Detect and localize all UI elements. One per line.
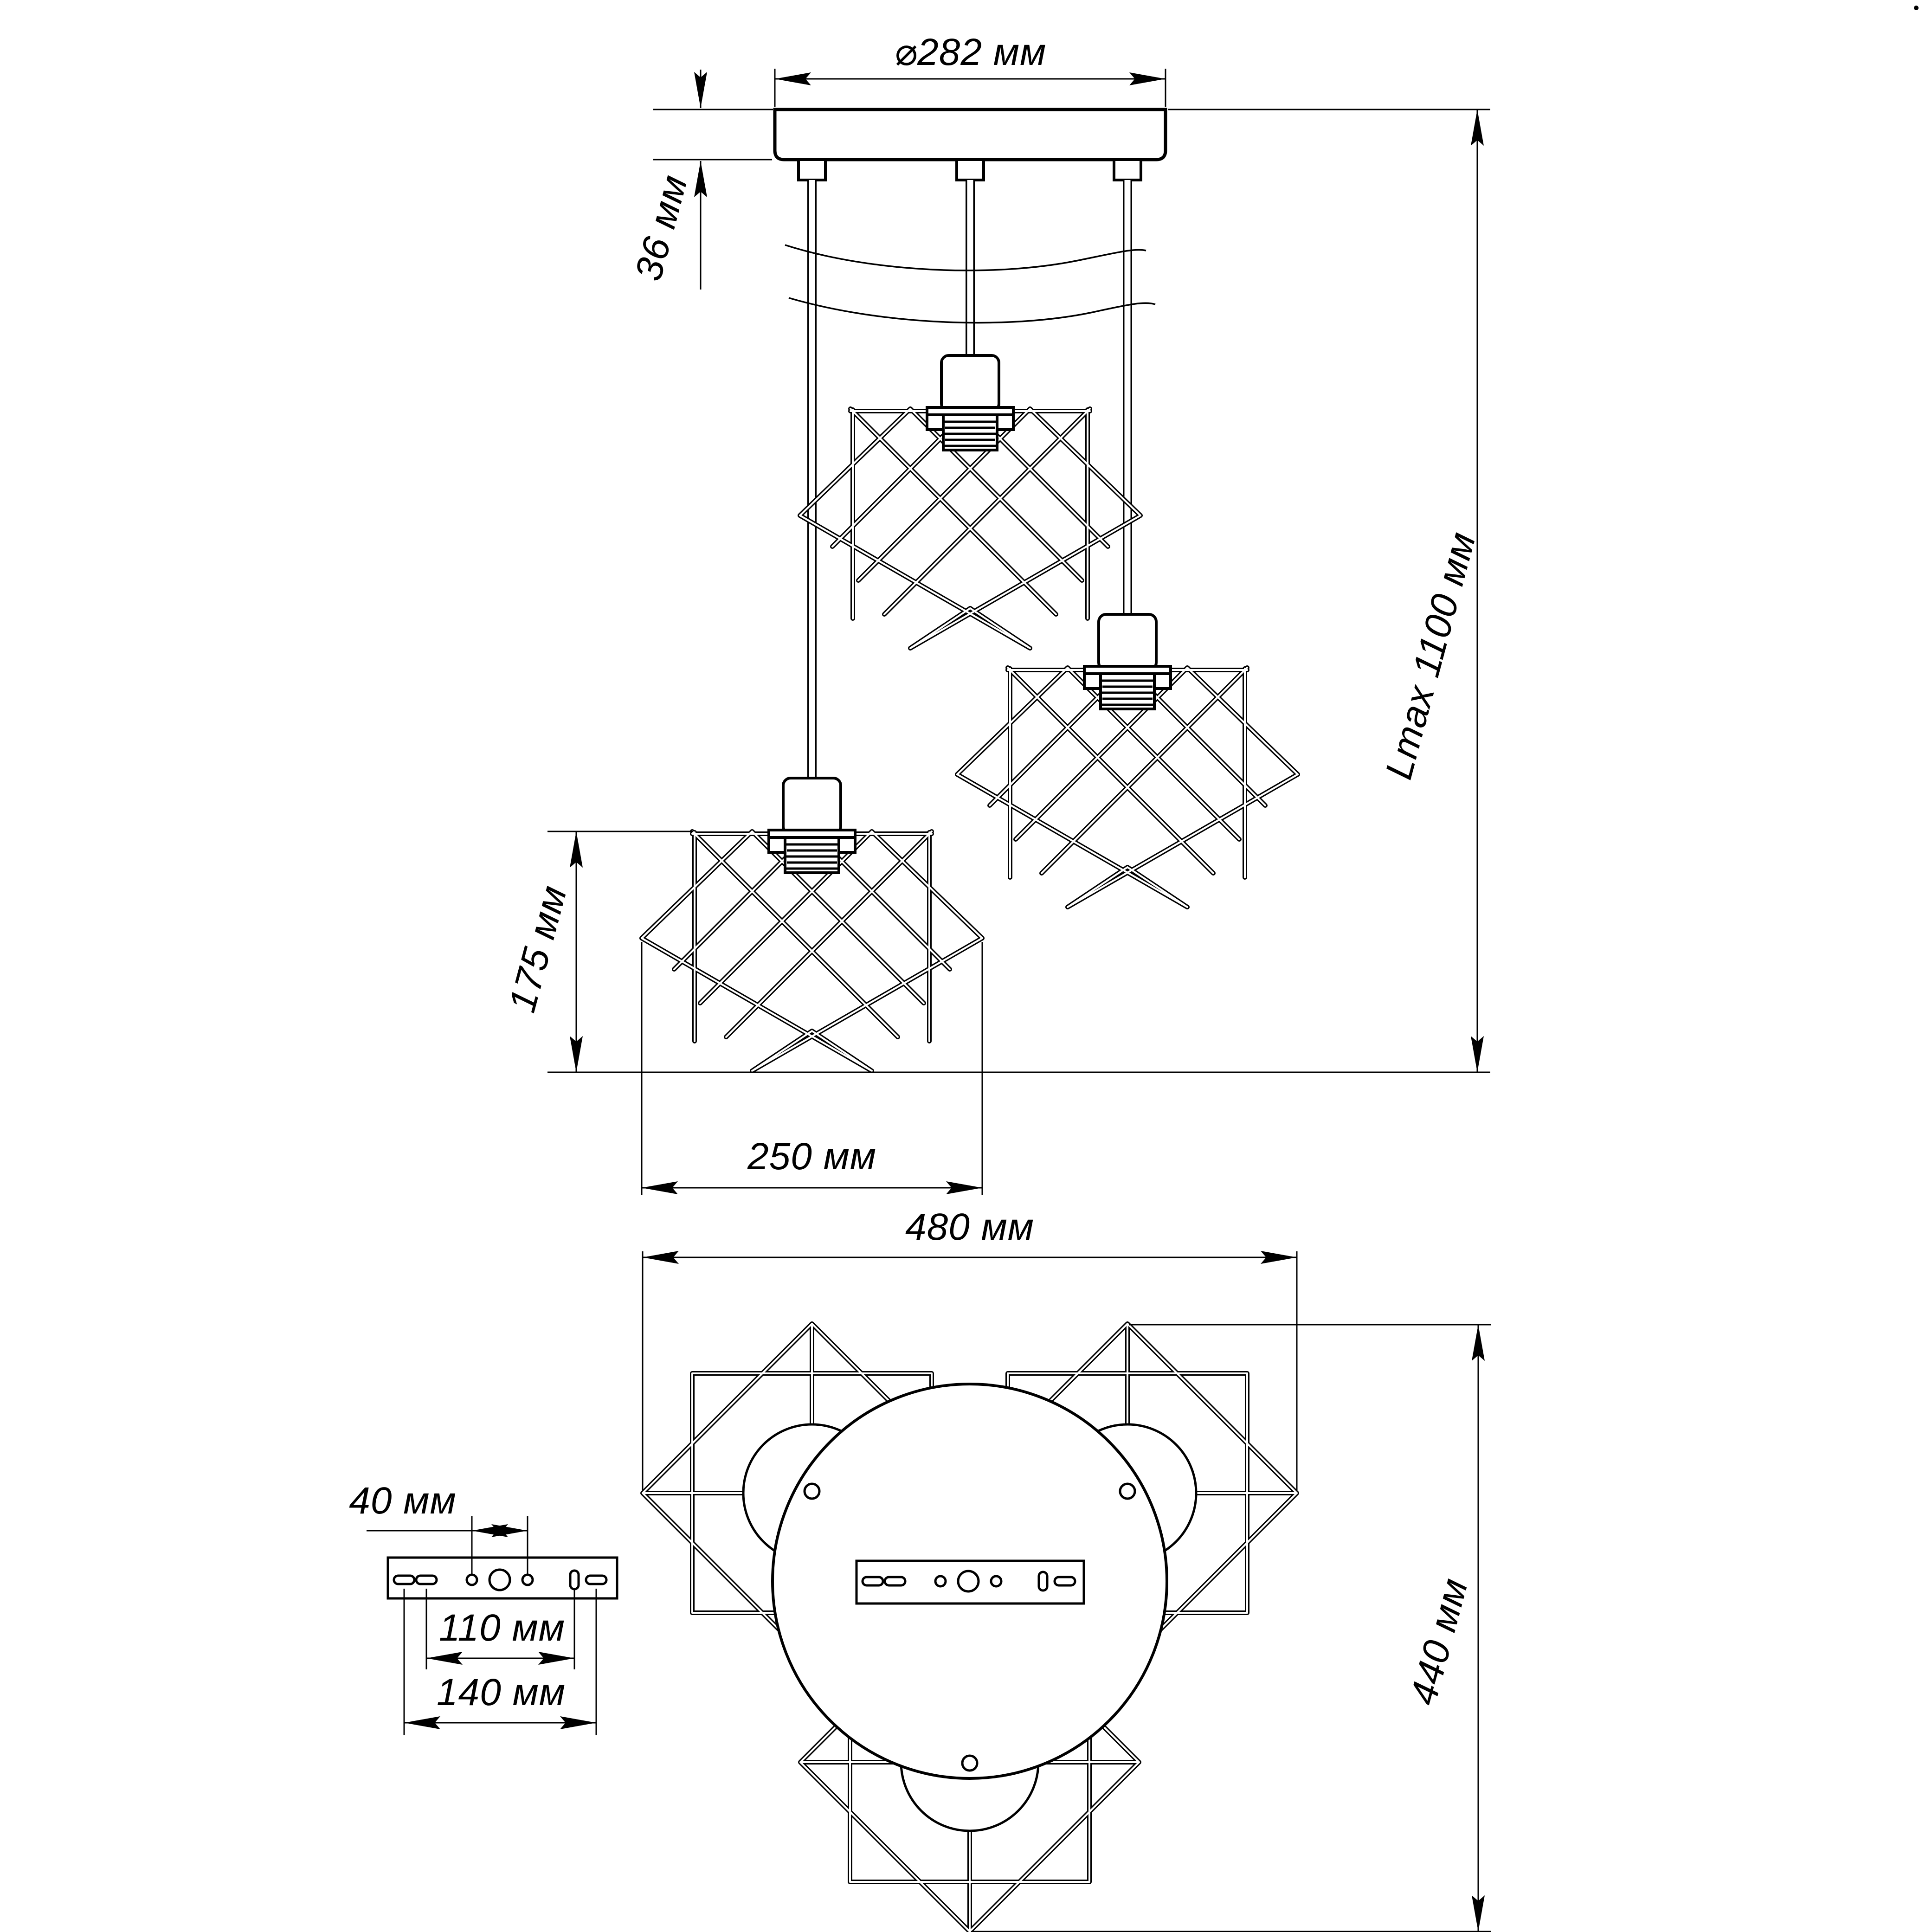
dim-bracket-slot-span: 110 мм — [426, 1589, 574, 1669]
technical-drawing: ⌀282 мм 36 мм Lmax 1100 мм 175 мм 250 мм — [0, 0, 1932, 1932]
cord-grip-right — [1114, 160, 1141, 180]
bracket-slot-vertical — [570, 1571, 579, 1589]
dim-shade-width-label: 250 мм — [747, 1135, 876, 1178]
lamp-shade-front-top — [800, 355, 1140, 648]
top-view: 480 мм 440 мм — [643, 1206, 1491, 1932]
dim-canopy-height: 36 мм — [627, 70, 773, 290]
dim-canopy-diameter-label: ⌀282 мм — [894, 31, 1046, 73]
stray-dot — [1914, 6, 1919, 10]
dim-fixture-depth-label: 440 мм — [1402, 1574, 1476, 1709]
dim-bracket-overall-span-label: 140 мм — [437, 1671, 566, 1713]
dim-shade-height-label: 175 мм — [501, 881, 575, 1017]
dim-canopy-height-label: 36 мм — [627, 170, 696, 285]
front-view: ⌀282 мм 36 мм Lmax 1100 мм 175 мм 250 мм — [501, 31, 1490, 1195]
dim-max-length-label: Lmax 1100 мм — [1378, 528, 1484, 784]
bracket-hole-small-right — [522, 1575, 533, 1585]
mounting-bracket-top — [857, 1561, 1084, 1604]
lamp-shade-front-right — [957, 614, 1298, 907]
cord-grip-middle — [957, 160, 984, 180]
bracket-hole-small-left — [467, 1575, 477, 1585]
bracket-slot-1 — [394, 1576, 414, 1584]
ceiling-plate — [775, 109, 1166, 160]
lamp-shade-front-left — [642, 778, 982, 1071]
bracket-slot-3 — [586, 1576, 606, 1584]
dim-max-length: Lmax 1100 мм — [547, 109, 1490, 1072]
bracket-slot-2 — [416, 1576, 437, 1584]
cord-grip-left — [799, 160, 825, 180]
bracket-hole-center — [489, 1570, 510, 1590]
dim-fixture-width-label: 480 мм — [905, 1206, 1034, 1248]
dim-bracket-slot-span-label: 110 мм — [439, 1607, 565, 1649]
dim-canopy-diameter: ⌀282 мм — [775, 31, 1166, 107]
dim-bracket-hole-gap-label: 40 мм — [349, 1480, 456, 1522]
bracket-side-view: 40 мм 110 мм 140 мм — [349, 1480, 617, 1735]
